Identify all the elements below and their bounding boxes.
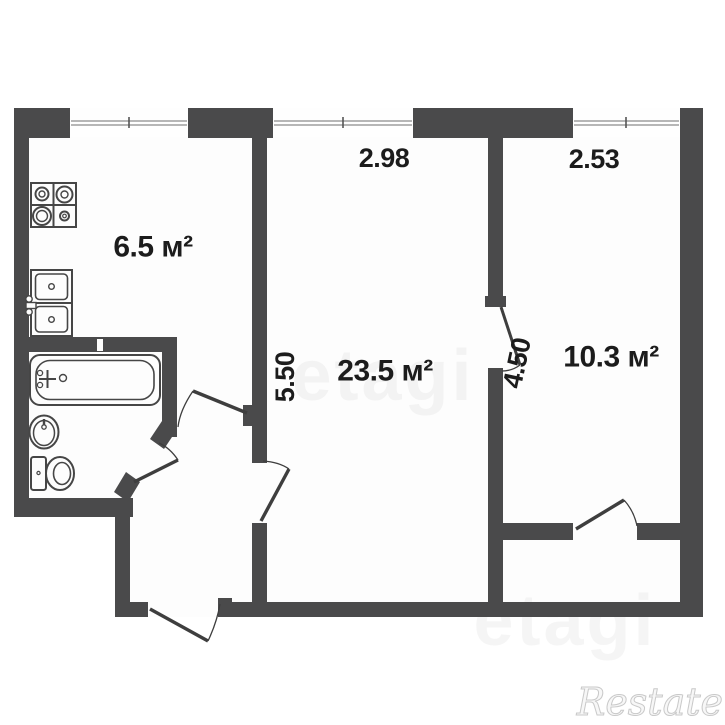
bedroom-door-hinge-stub bbox=[485, 296, 506, 307]
wall-living-bedroom-lower bbox=[488, 368, 503, 604]
wall-closet-right bbox=[637, 523, 680, 540]
entrance-right-jamb bbox=[218, 598, 232, 617]
wall-bathroom-bottom bbox=[14, 498, 133, 517]
floor-plan-drawing: etagi etagi bbox=[0, 0, 725, 725]
wall-bottom-main bbox=[218, 602, 703, 617]
wall-hall-left bbox=[115, 517, 130, 617]
washbasin-icon bbox=[30, 416, 59, 449]
bathtub-icon bbox=[30, 355, 160, 405]
bedroom-area-label: 10.3 м² bbox=[563, 341, 659, 374]
toilet-icon bbox=[31, 457, 74, 490]
wall-kitchen-living bbox=[252, 138, 267, 463]
living-room-width-dim: 2.98 bbox=[359, 143, 410, 173]
watermark-restate: Restate bbox=[576, 680, 723, 724]
living-room-depth-dim: 5.50 bbox=[270, 352, 300, 403]
wall-bathroom-right bbox=[162, 337, 177, 437]
wall-hall-living-lower bbox=[252, 523, 267, 605]
wall-living-bedroom-upper bbox=[488, 138, 503, 305]
wall-top-mid2 bbox=[413, 108, 573, 138]
kitchen-area-label: 6.5 м² bbox=[113, 231, 193, 264]
wall-right bbox=[680, 108, 703, 617]
bedroom-width-dim: 2.53 bbox=[569, 144, 620, 174]
windows bbox=[70, 108, 680, 137]
stove-icon bbox=[31, 183, 76, 227]
wall-bathroom-top bbox=[14, 337, 177, 352]
living-room-area-label: 23.5 м² bbox=[337, 355, 433, 388]
kitchen-sink-icon bbox=[26, 270, 72, 336]
wall-top-mid1 bbox=[188, 108, 273, 138]
wall-closet-left bbox=[503, 523, 573, 540]
wall-notch bbox=[97, 339, 103, 351]
kitchen-door-hinge-stub bbox=[243, 405, 252, 426]
floor-plan-page: etagi etagi bbox=[0, 0, 725, 725]
